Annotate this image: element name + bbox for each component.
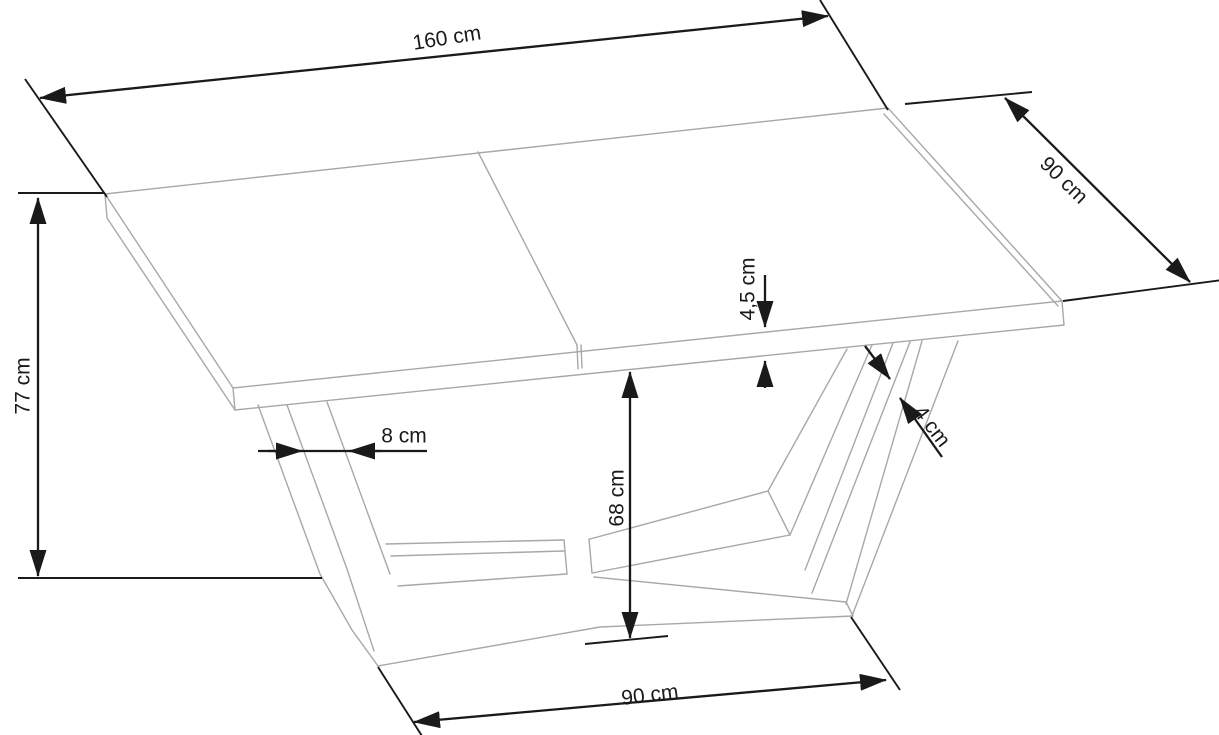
right-leg-back-edge bbox=[805, 343, 893, 570]
dim-160-ext-left bbox=[25, 79, 107, 197]
left-leg-middle-edge bbox=[287, 405, 374, 651]
dim-top-thickness-45: 4,5 cm bbox=[737, 257, 765, 388]
right-back-arm-inner bbox=[790, 345, 872, 535]
dim-label-depth: 90 cm bbox=[1035, 152, 1092, 208]
dim-label-leg-offset: 8 cm bbox=[381, 425, 427, 448]
dim-90r-ext-top bbox=[905, 92, 1032, 104]
diagram-canvas: 160 cm 90 cm 77 cm 4,5 cm 4 cm 68 cm 8 c… bbox=[0, 0, 1219, 735]
floor-runner-front-left-top bbox=[398, 574, 567, 586]
dim-label-leg-thickness: 4 cm bbox=[909, 401, 955, 451]
dim-160-ext-right bbox=[820, 0, 888, 110]
left-leg-outer-edge bbox=[258, 405, 378, 666]
tabletop-outline bbox=[105, 108, 1064, 410]
right-leg-outer-edge bbox=[852, 341, 958, 616]
dim-length-160: 160 cm bbox=[25, 0, 888, 197]
tabletop-back-edge bbox=[105, 108, 888, 194]
junction-cap-right bbox=[589, 539, 592, 573]
dim-label-length: 160 cm bbox=[411, 21, 483, 54]
tabletop-left-edge bbox=[105, 194, 233, 388]
tabletop-right-edge-inner bbox=[884, 114, 1058, 306]
dim-leg-offset-8: 8 cm bbox=[258, 425, 427, 451]
tabletop-right-edge bbox=[888, 108, 1062, 301]
dim-height-77: 77 cm bbox=[12, 193, 322, 578]
junction-cap-left bbox=[564, 540, 567, 574]
right-leg-inner-edge bbox=[812, 342, 910, 593]
band-seam-notch-b bbox=[581, 345, 582, 368]
right-foot-cap bbox=[846, 602, 853, 616]
dim-leg-thickness-4: 4 cm bbox=[865, 346, 955, 457]
band-bottom-front bbox=[235, 325, 1064, 410]
dim-depth-90: 90 cm bbox=[905, 92, 1219, 301]
dim-base-width-90: 90 cm bbox=[378, 617, 900, 735]
dim-label-base-width: 90 cm bbox=[620, 680, 680, 710]
floor-bar-back-right-lower bbox=[592, 535, 790, 573]
right-back-arm-outer bbox=[768, 349, 847, 491]
floor-runner-front-right-top bbox=[594, 577, 846, 602]
floor-bar-back-left-lower bbox=[391, 551, 564, 556]
dim-label-clearance: 68 cm bbox=[606, 469, 629, 526]
band-corner-front-right bbox=[1062, 301, 1064, 325]
dim-90b-ext-right bbox=[851, 617, 900, 690]
dim-90b-ext-left bbox=[378, 667, 422, 735]
tabletop-front-edge bbox=[233, 301, 1062, 388]
floor-bar-back-left-top bbox=[386, 540, 564, 544]
dim-68-floor-tick bbox=[585, 636, 668, 644]
band-bottom-left bbox=[107, 218, 235, 410]
tabletop-seam bbox=[478, 152, 577, 345]
right-back-foot-cap bbox=[768, 491, 790, 535]
dim-90r-ext-bottom bbox=[1063, 280, 1219, 301]
dim-label-top-thickness: 4,5 cm bbox=[737, 257, 760, 320]
band-seam-notch-a bbox=[577, 345, 578, 369]
dim-4-arrow-upper bbox=[865, 346, 890, 379]
dim-label-height: 77 cm bbox=[12, 357, 35, 414]
dim-90r-line bbox=[1005, 98, 1190, 282]
table-dimension-diagram: 160 cm 90 cm 77 cm 4,5 cm 4 cm 68 cm 8 c… bbox=[0, 0, 1219, 735]
dim-clearance-68: 68 cm bbox=[585, 372, 668, 644]
